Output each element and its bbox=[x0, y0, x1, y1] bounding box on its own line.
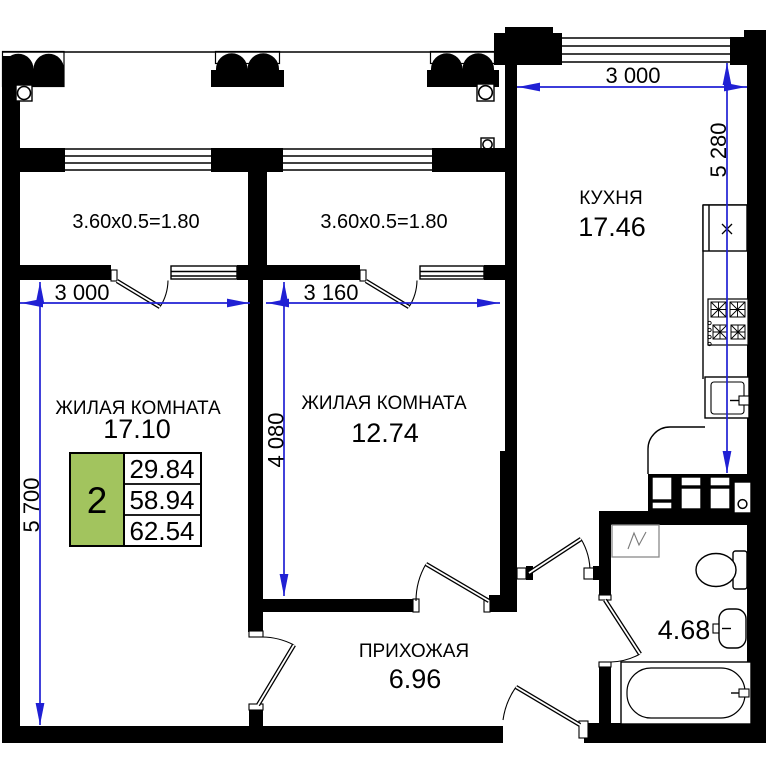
svg-text:5 700: 5 700 bbox=[19, 477, 44, 532]
svg-text:3.60x0.5=1.80: 3.60x0.5=1.80 bbox=[72, 211, 199, 233]
svg-text:3 000: 3 000 bbox=[54, 280, 109, 305]
svg-text:4.68: 4.68 bbox=[658, 615, 711, 645]
svg-text:5 280: 5 280 bbox=[706, 122, 731, 177]
svg-text:17.46: 17.46 bbox=[578, 212, 646, 242]
svg-text:62.54: 62.54 bbox=[129, 516, 194, 546]
svg-text:3 160: 3 160 bbox=[303, 280, 358, 305]
svg-text:ПРИХОЖАЯ: ПРИХОЖАЯ bbox=[359, 641, 469, 662]
svg-text:58.94: 58.94 bbox=[129, 485, 194, 515]
svg-text:3 000: 3 000 bbox=[605, 63, 660, 88]
svg-text:6.96: 6.96 bbox=[389, 664, 442, 694]
svg-text:КУХНЯ: КУХНЯ bbox=[579, 188, 642, 209]
svg-text:2: 2 bbox=[87, 480, 108, 521]
svg-text:ЖИЛАЯ КОМНАТА: ЖИЛАЯ КОМНАТА bbox=[301, 393, 467, 414]
svg-text:12.74: 12.74 bbox=[351, 418, 419, 448]
svg-text:3.60x0.5=1.80: 3.60x0.5=1.80 bbox=[320, 211, 447, 233]
svg-text:4 080: 4 080 bbox=[264, 412, 289, 467]
svg-text:29.84: 29.84 bbox=[129, 454, 194, 484]
svg-text:17.10: 17.10 bbox=[103, 414, 171, 444]
